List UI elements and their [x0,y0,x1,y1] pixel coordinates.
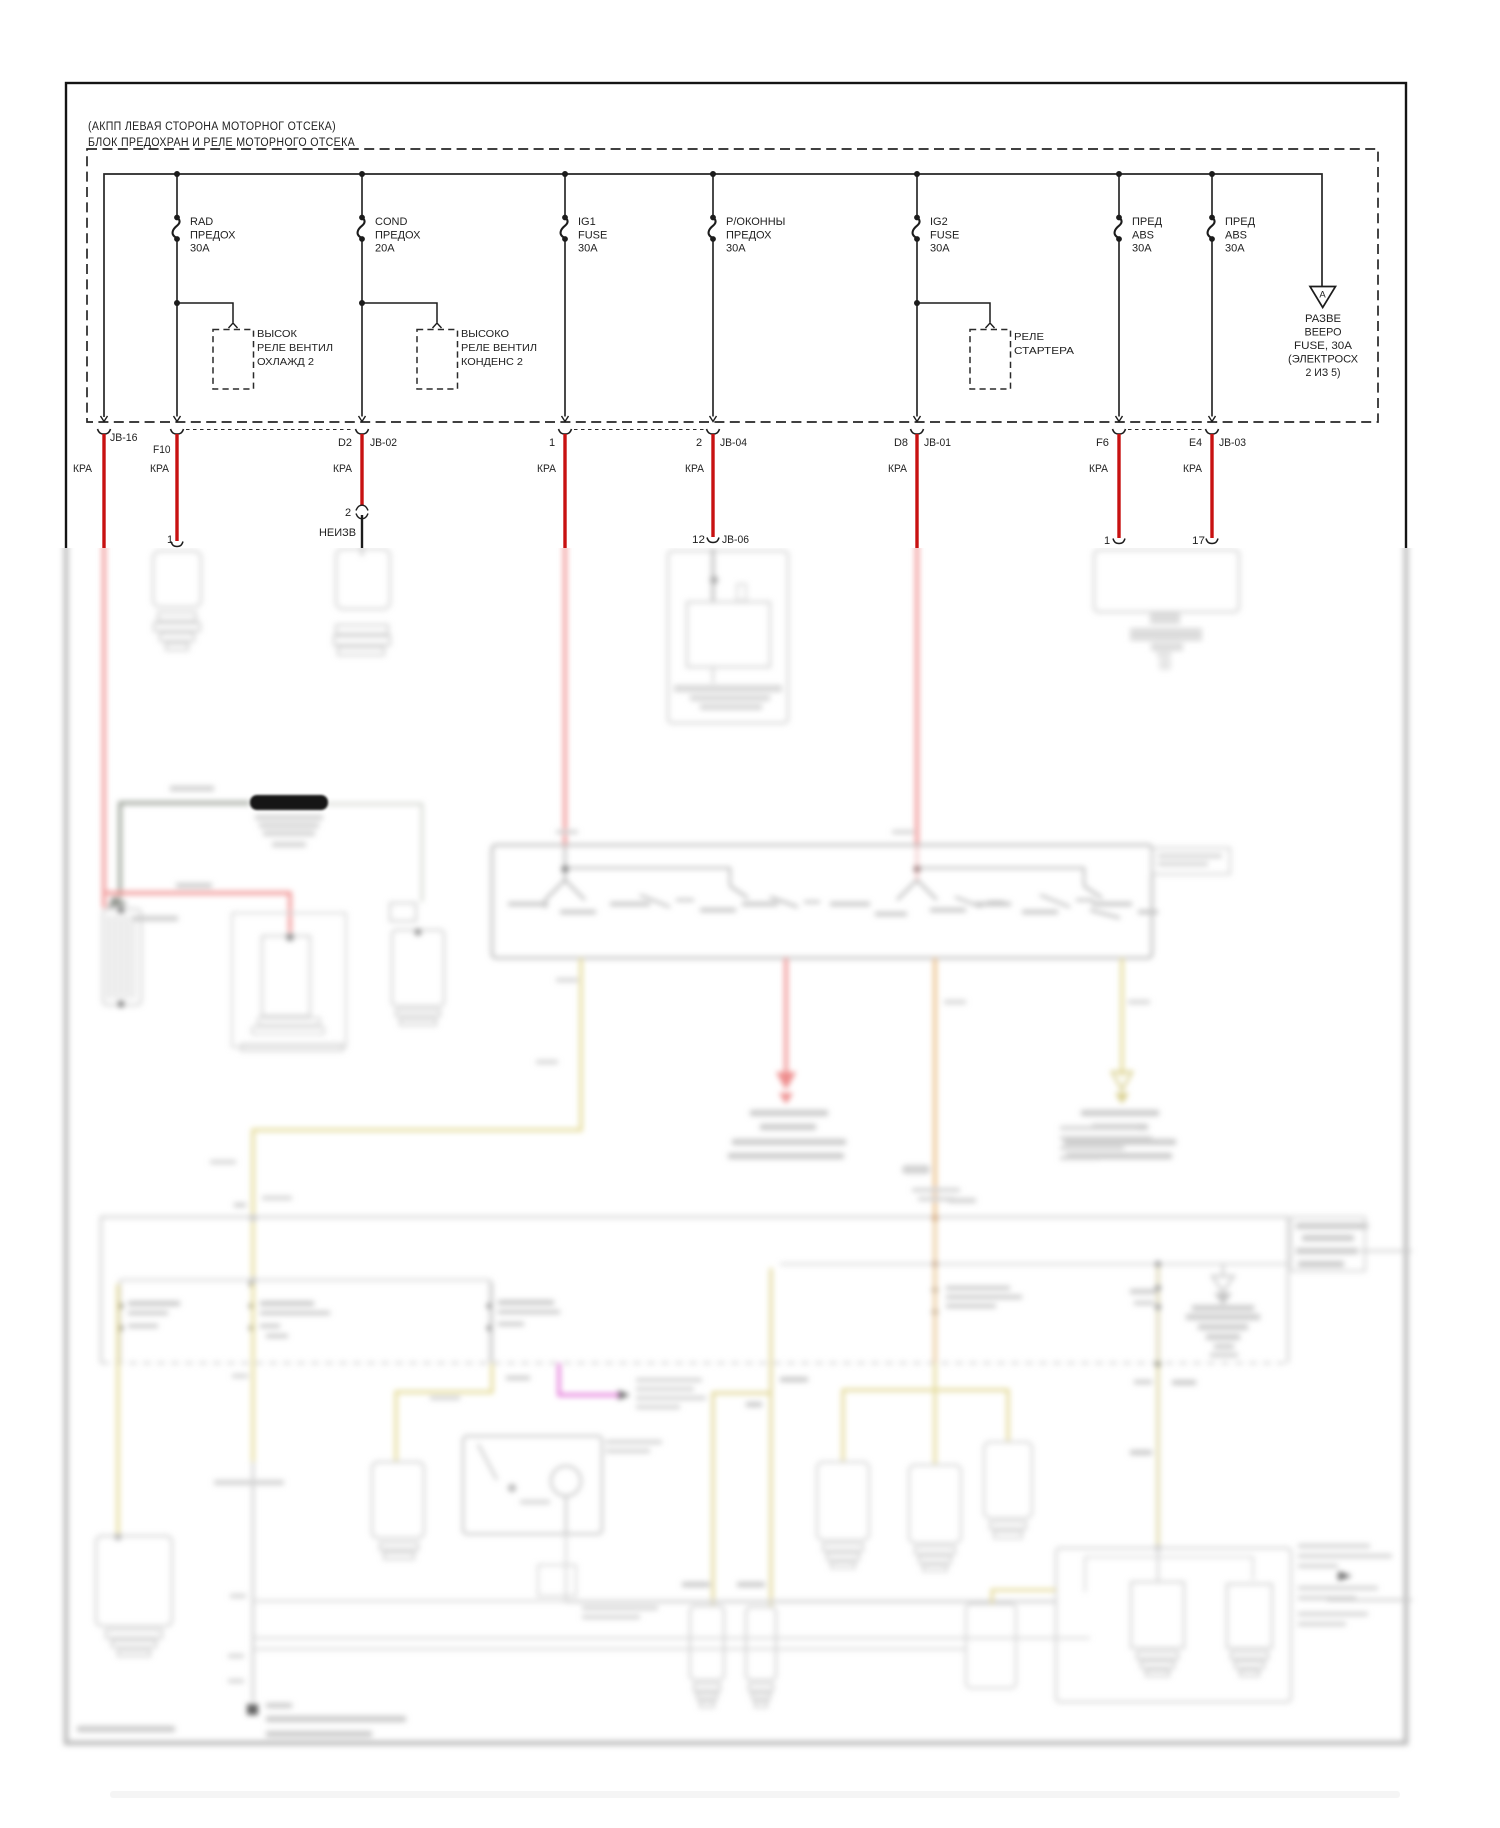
svg-text:КРА: КРА [1183,463,1203,475]
svg-text:30A: 30A [930,243,950,255]
svg-text:IG1: IG1 [578,216,596,228]
svg-text:ABS: ABS [1132,230,1154,242]
svg-text:30A: 30A [1225,243,1245,255]
svg-text:FUSE: FUSE [930,230,959,242]
svg-text:30A: 30A [578,243,598,255]
svg-text:ПРЕДОХ: ПРЕДОХ [190,230,236,242]
svg-text:F10: F10 [153,444,171,456]
svg-text:JB-04: JB-04 [720,437,747,449]
svg-text:ОХЛАЖД 2: ОХЛАЖД 2 [257,356,314,368]
svg-text:НЕИЗВ: НЕИЗВ [319,527,356,539]
svg-text:RAD: RAD [190,216,213,228]
svg-text:12: 12 [692,534,705,546]
svg-text:30A: 30A [1132,243,1152,255]
svg-text:FUSE, 30A: FUSE, 30A [1294,340,1353,352]
svg-text:КРА: КРА [333,463,353,475]
svg-text:РЕЛЕ ВЕНТИЛ: РЕЛЕ ВЕНТИЛ [461,342,537,354]
svg-text:JB-02: JB-02 [370,437,397,449]
svg-text:17: 17 [1192,535,1205,547]
svg-text:JB-16: JB-16 [110,432,138,444]
svg-text:JB-01: JB-01 [924,437,951,449]
svg-text:РЕЛЕ: РЕЛЕ [1014,331,1044,343]
svg-text:РЕЛЕ ВЕНТИЛ: РЕЛЕ ВЕНТИЛ [257,342,333,354]
svg-text:БЛОК ПРЕДОХРАН И РЕЛЕ МОТОРНОГ: БЛОК ПРЕДОХРАН И РЕЛЕ МОТОРНОГО ОТСЕКА [88,137,355,149]
svg-text:ВЫСОК: ВЫСОК [257,328,298,340]
svg-text:РАЗВЕ: РАЗВЕ [1305,313,1341,325]
svg-text:E4: E4 [1189,437,1202,449]
svg-text:1: 1 [1104,535,1110,547]
svg-text:JB-03: JB-03 [1219,437,1246,449]
svg-text:КРА: КРА [1089,463,1109,475]
svg-text:2 ИЗ 5): 2 ИЗ 5) [1306,367,1341,379]
svg-text:КРА: КРА [73,463,93,475]
svg-text:СТАРТЕРА: СТАРТЕРА [1014,345,1074,357]
svg-text:Р/ОКОННЫ: Р/ОКОННЫ [726,216,785,228]
svg-text:30A: 30A [726,243,746,255]
svg-text:ПРЕДОХ: ПРЕДОХ [375,230,421,242]
svg-text:(АКПП ЛЕВАЯ СТОРОНА МОТОРНОГ О: (АКПП ЛЕВАЯ СТОРОНА МОТОРНОГ ОТСЕКА) [88,121,336,133]
svg-text:КРА: КРА [150,463,170,475]
svg-text:КРА: КРА [537,463,557,475]
svg-text:IG2: IG2 [930,216,948,228]
svg-text:ПРЕД: ПРЕД [1225,216,1256,228]
svg-text:КОНДЕНС 2: КОНДЕНС 2 [461,356,523,368]
svg-text:20A: 20A [375,243,395,255]
svg-text:30A: 30A [190,243,210,255]
svg-text:(ЭЛЕКТРОСХ: (ЭЛЕКТРОСХ [1288,354,1359,366]
svg-text:FUSE: FUSE [578,230,607,242]
svg-text:ВЕЕРО: ВЕЕРО [1305,327,1342,339]
svg-text:D2: D2 [338,437,352,449]
svg-text:A: A [1319,290,1326,301]
svg-text:2: 2 [696,437,702,449]
svg-text:2: 2 [345,507,351,519]
svg-text:КРА: КРА [685,463,705,475]
svg-text:ПРЕД: ПРЕД [1132,216,1163,228]
svg-text:1: 1 [167,534,173,546]
svg-text:D8: D8 [894,437,908,449]
svg-text:КРА: КРА [888,463,908,475]
svg-text:F6: F6 [1096,437,1109,449]
svg-text:ABS: ABS [1225,230,1247,242]
svg-text:COND: COND [375,216,407,228]
svg-text:1: 1 [549,437,555,449]
svg-text:ВЫСОКО: ВЫСОКО [461,328,509,340]
svg-text:JB-06: JB-06 [722,534,749,546]
svg-text:ПРЕДОХ: ПРЕДОХ [726,230,772,242]
